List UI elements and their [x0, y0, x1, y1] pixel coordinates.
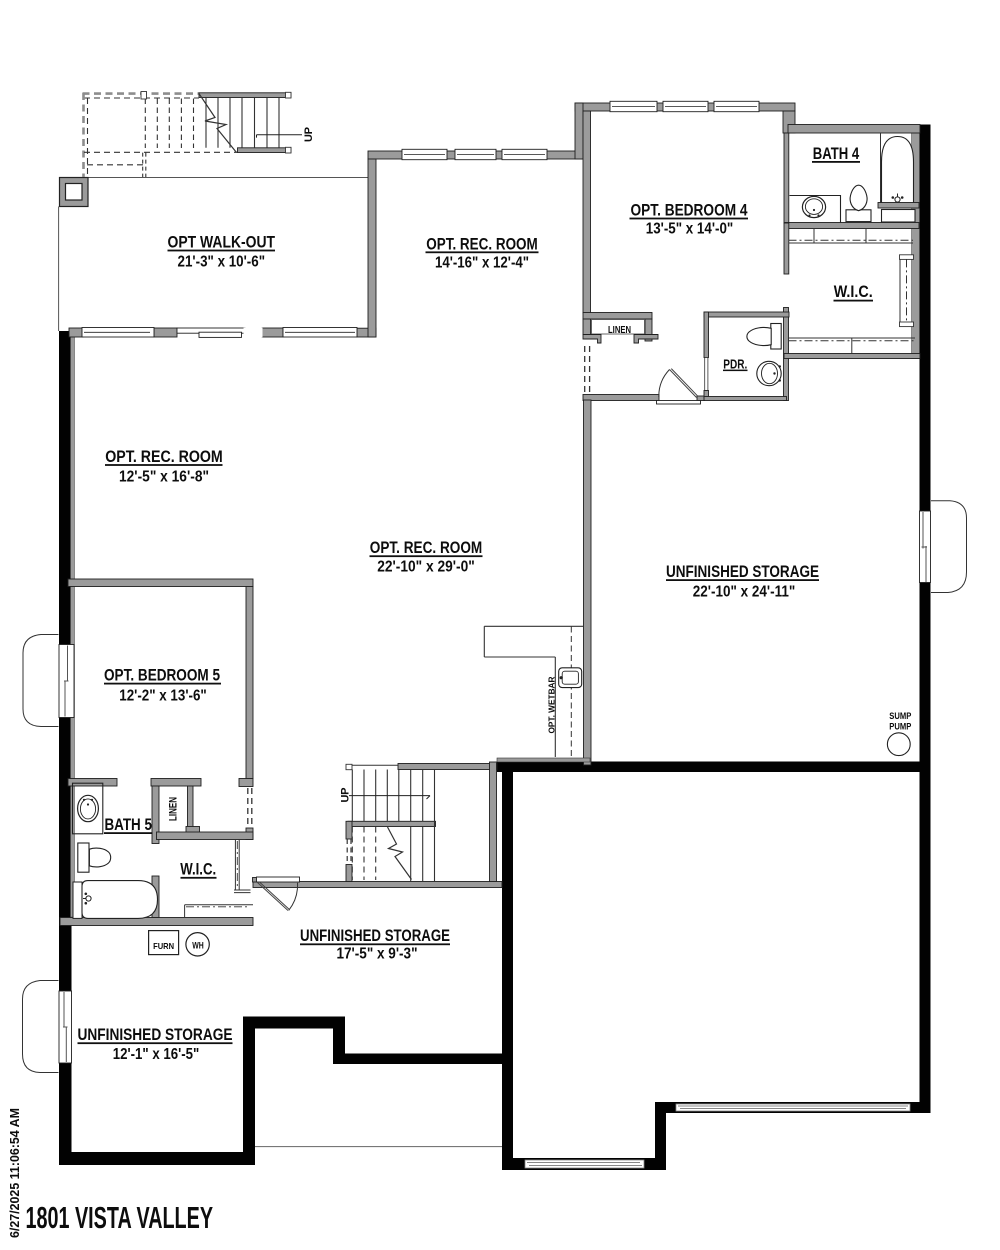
- svg-text:OPT. REC. ROOM: OPT. REC. ROOM: [105, 448, 223, 466]
- svg-text:BATH 5: BATH 5: [104, 816, 152, 834]
- svg-text:PUMP: PUMP: [889, 722, 912, 733]
- svg-text:UNFINISHED STORAGE: UNFINISHED STORAGE: [300, 927, 450, 945]
- svg-text:UNFINISHED STORAGE: UNFINISHED STORAGE: [666, 563, 819, 581]
- svg-text:LINEN: LINEN: [608, 325, 631, 336]
- svg-text:OPT. REC. ROOM: OPT. REC. ROOM: [426, 236, 538, 254]
- svg-text:22'-10" x 24'-11": 22'-10" x 24'-11": [693, 584, 796, 601]
- svg-text:LINEN: LINEN: [168, 797, 180, 821]
- svg-text:FURN: FURN: [153, 941, 174, 951]
- svg-text:12'-1" x 16'-5": 12'-1" x 16'-5": [113, 1046, 200, 1063]
- svg-text:UP: UP: [340, 788, 352, 803]
- svg-text:PDR.: PDR.: [723, 358, 747, 372]
- svg-text:OPT WALK-OUT: OPT WALK-OUT: [168, 234, 276, 252]
- svg-text:21'-3" x 10'-6": 21'-3" x 10'-6": [178, 254, 266, 271]
- svg-text:12'-2" x 13'-6": 12'-2" x 13'-6": [119, 688, 207, 705]
- svg-text:OPT. WETBAR: OPT. WETBAR: [547, 677, 557, 734]
- svg-text:OPT. BEDROOM 4: OPT. BEDROOM 4: [631, 202, 749, 220]
- svg-text:OPT. REC. ROOM: OPT. REC. ROOM: [370, 539, 483, 557]
- svg-text:WH: WH: [192, 940, 204, 950]
- svg-text:12'-5" x 16'-8": 12'-5" x 16'-8": [119, 469, 209, 486]
- svg-text:13'-5" x 14'-0": 13'-5" x 14'-0": [646, 221, 734, 238]
- svg-text:W.I.C.: W.I.C.: [834, 283, 873, 301]
- svg-text:W.I.C.: W.I.C.: [180, 861, 216, 879]
- svg-text:SUMP: SUMP: [889, 711, 912, 722]
- svg-text:22'-10" x 29'-0": 22'-10" x 29'-0": [377, 559, 475, 576]
- svg-text:17'-5" x 9'-3": 17'-5" x 9'-3": [337, 946, 418, 963]
- svg-text:UNFINISHED STORAGE: UNFINISHED STORAGE: [78, 1026, 233, 1044]
- svg-text:UP: UP: [303, 127, 315, 142]
- svg-text:1801 VISTA VALLEY: 1801 VISTA VALLEY: [26, 1200, 214, 1235]
- svg-text:BATH 4: BATH 4: [813, 145, 860, 163]
- svg-text:6/27/2025 11:06:54 AM: 6/27/2025 11:06:54 AM: [8, 1108, 22, 1238]
- svg-text:OPT. BEDROOM 5: OPT. BEDROOM 5: [104, 667, 220, 685]
- svg-text:14'-16" x 12'-4": 14'-16" x 12'-4": [435, 255, 529, 272]
